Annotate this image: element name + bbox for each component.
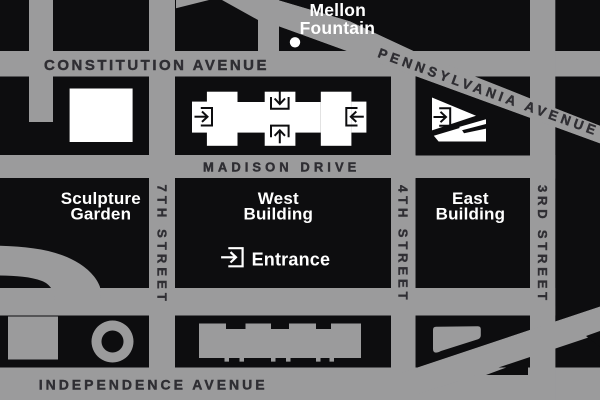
svg-text:3RD STREET: 3RD STREET (535, 185, 550, 304)
svg-text:INDEPENDENCE AVENUE: INDEPENDENCE AVENUE (39, 377, 268, 393)
svg-text:MADISON DRIVE: MADISON DRIVE (203, 160, 360, 175)
svg-text:Building: Building (244, 205, 314, 224)
svg-text:Garden: Garden (70, 205, 131, 224)
svg-text:Fountain: Fountain (300, 18, 375, 38)
svg-text:Building: Building (436, 205, 506, 224)
svg-text:CONSTITUTION AVENUE: CONSTITUTION AVENUE (44, 57, 269, 74)
svg-text:Entrance: Entrance (252, 250, 331, 270)
svg-text:4TH STREET: 4TH STREET (396, 185, 411, 303)
svg-text:7TH STREET: 7TH STREET (154, 185, 169, 305)
